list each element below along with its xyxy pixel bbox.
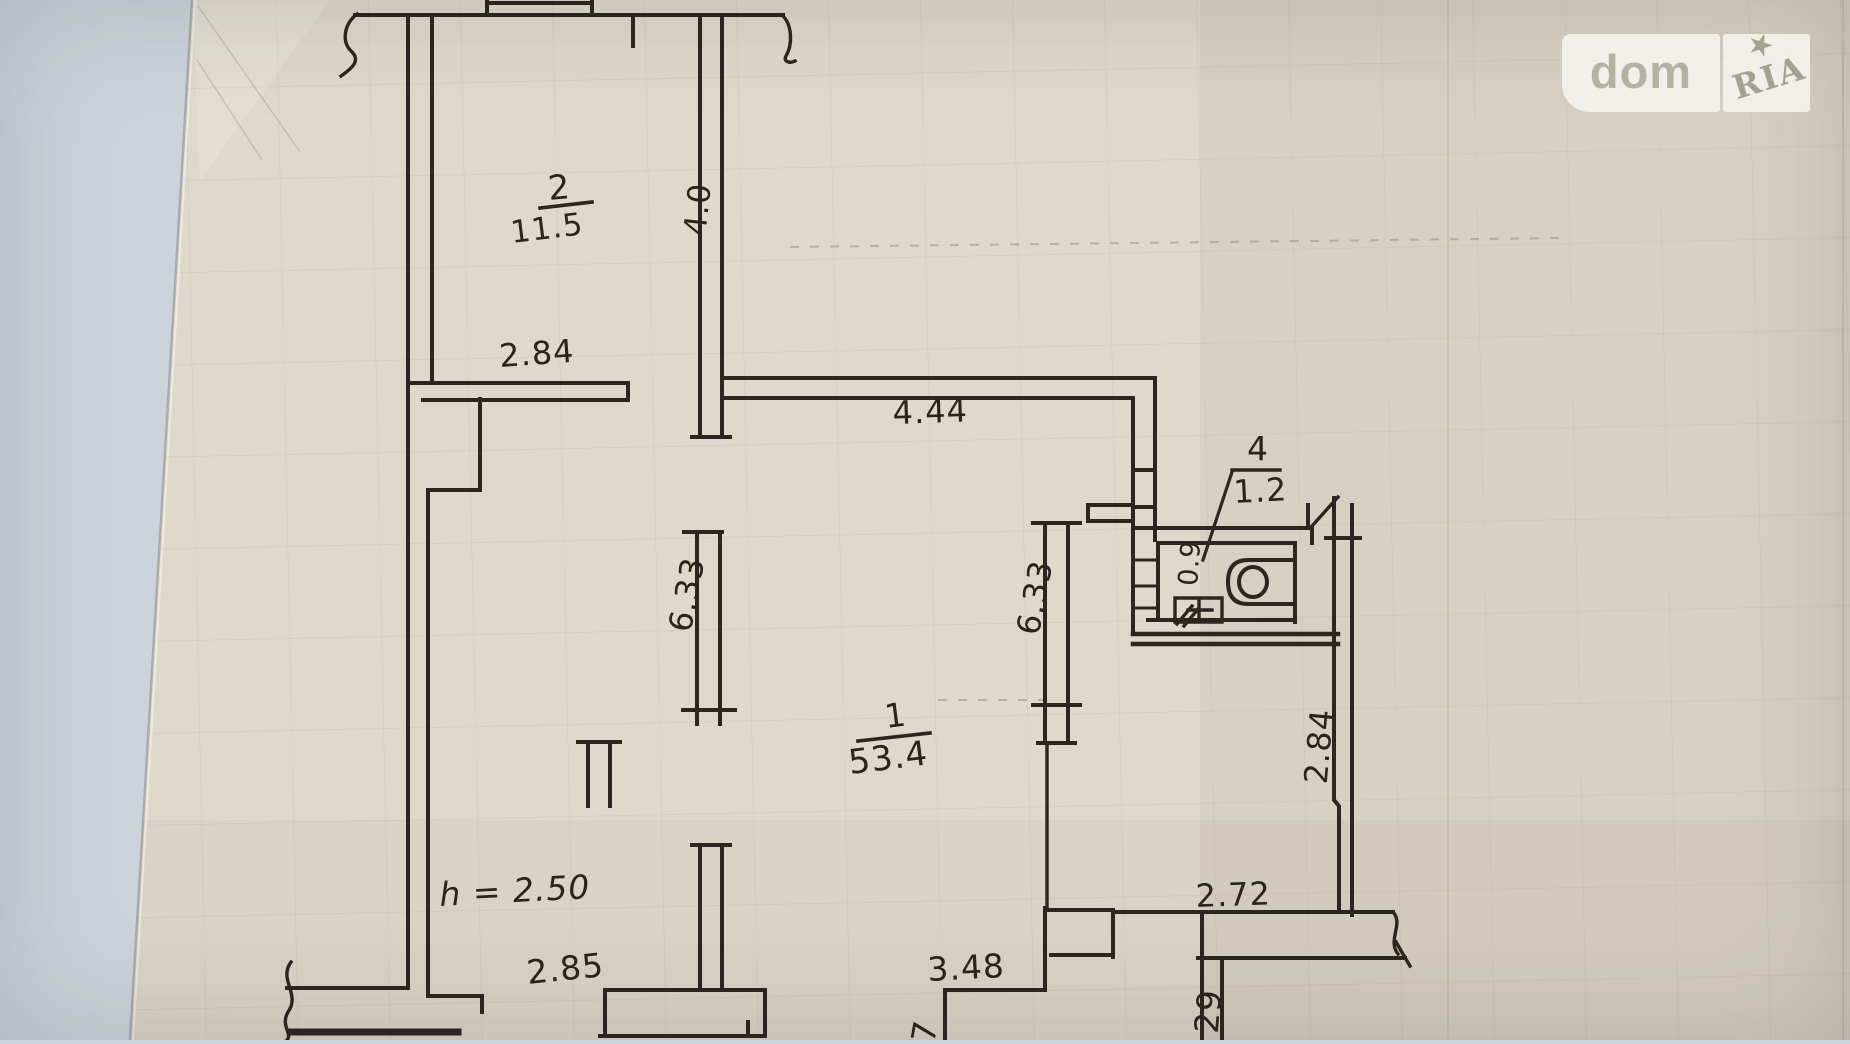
domria-ria-text: RIA <box>1728 48 1810 107</box>
hall-width-dimension: 4.44 <box>892 391 969 432</box>
opening-left-dimension: 2.85 <box>525 945 606 992</box>
floorplan-photo: 2 11.5 4.0 2.84 4.44 4 1.2 0.9 6.33 6.33… <box>0 0 1850 1040</box>
bottom-right-dimension: 2.72 <box>1195 874 1272 915</box>
domria-watermark: dom ★ RIA <box>1562 34 1810 112</box>
domria-dom-text: dom <box>1590 48 1692 99</box>
room2-width-dimension: 2.84 <box>498 332 576 375</box>
room2-number-label: 2 <box>546 167 572 209</box>
cut-dimension-right: 29 <box>1187 988 1230 1035</box>
opening-right-dimension: 3.48 <box>926 946 1005 989</box>
wc-width-dimension: 0.9 <box>1173 539 1207 587</box>
right-wall-dimension: 2.84 <box>1297 707 1341 785</box>
room4-number-label: 4 <box>1247 429 1269 468</box>
room2-depth-dimension: 4.0 <box>678 181 719 237</box>
domria-ria-badge: ★ RIA <box>1723 34 1810 112</box>
room4-area-label: 1.2 <box>1232 470 1288 511</box>
domria-dom-badge: dom <box>1562 34 1720 112</box>
ceiling-height-note: h = 2.50 <box>438 867 591 914</box>
floorplan-drawing: 2 11.5 4.0 2.84 4.44 4 1.2 0.9 6.33 6.33… <box>0 0 1850 1040</box>
paper-sheet <box>0 0 1850 1040</box>
